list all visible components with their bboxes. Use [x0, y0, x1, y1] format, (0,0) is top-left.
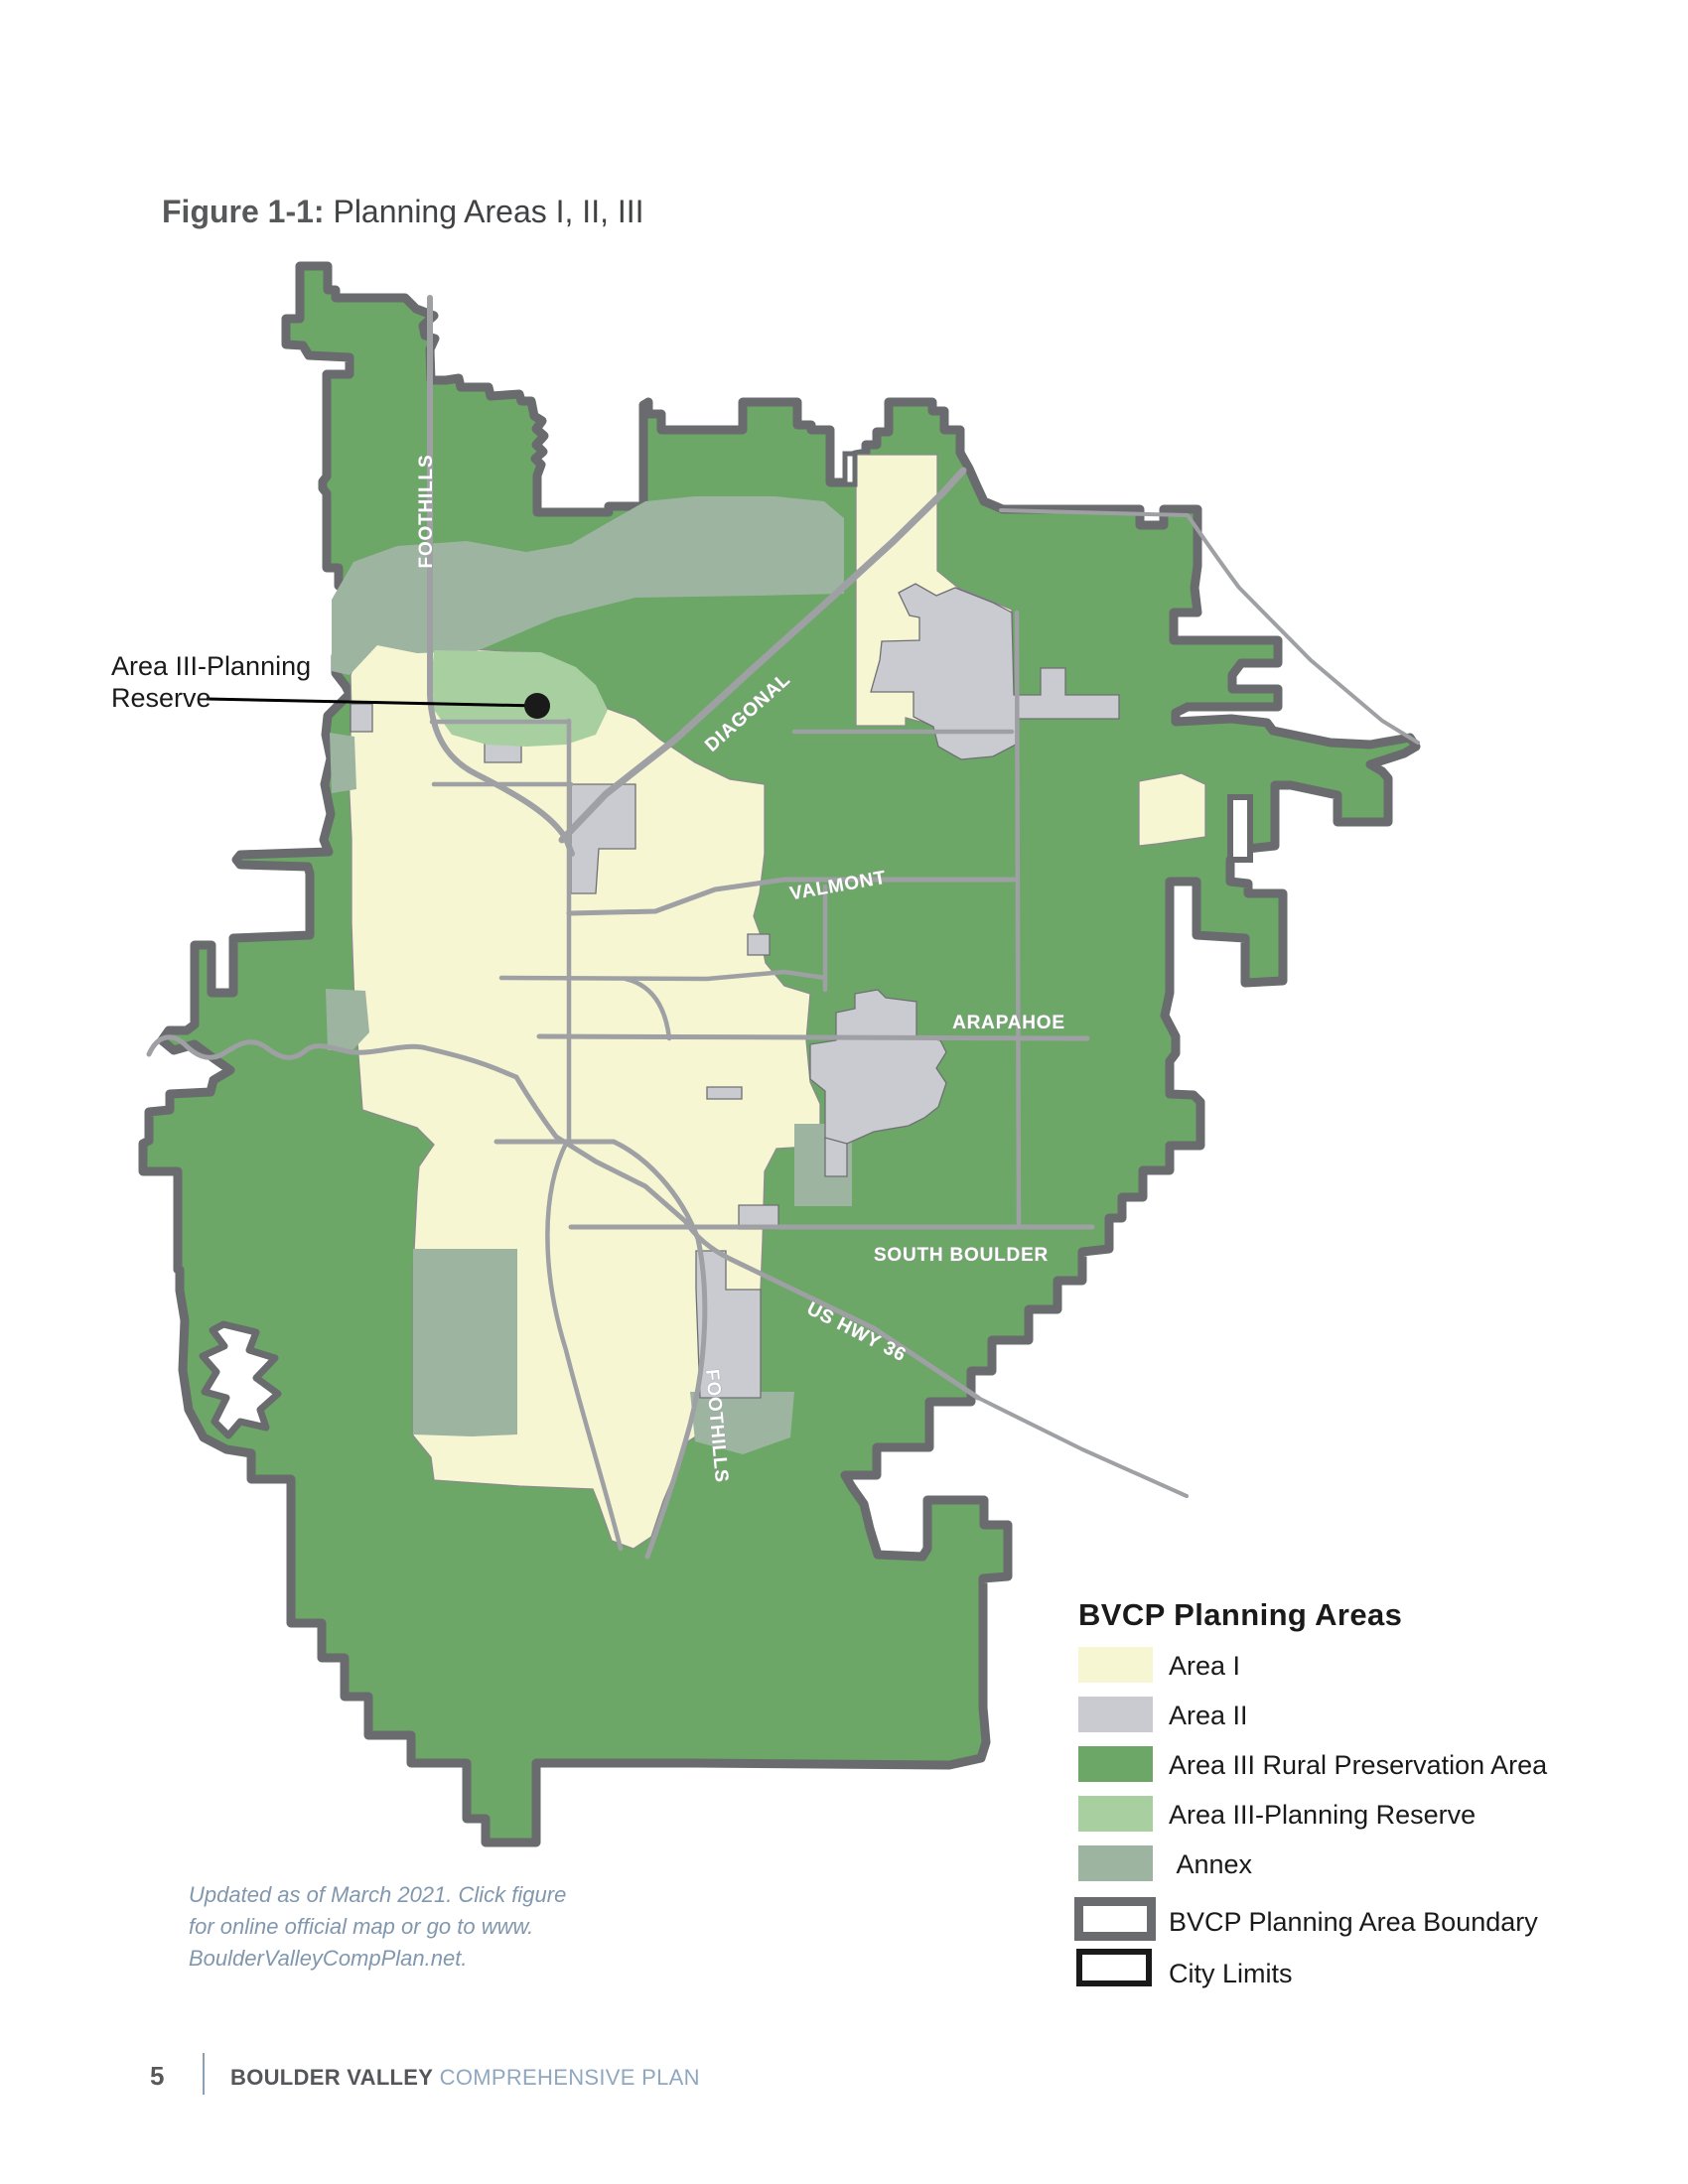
svg-text:FOOTHILLS: FOOTHILLS: [416, 455, 437, 569]
svg-text:ARAPAHOE: ARAPAHOE: [952, 1013, 1065, 1033]
svg-text:SOUTH BOULDER: SOUTH BOULDER: [874, 1245, 1049, 1266]
